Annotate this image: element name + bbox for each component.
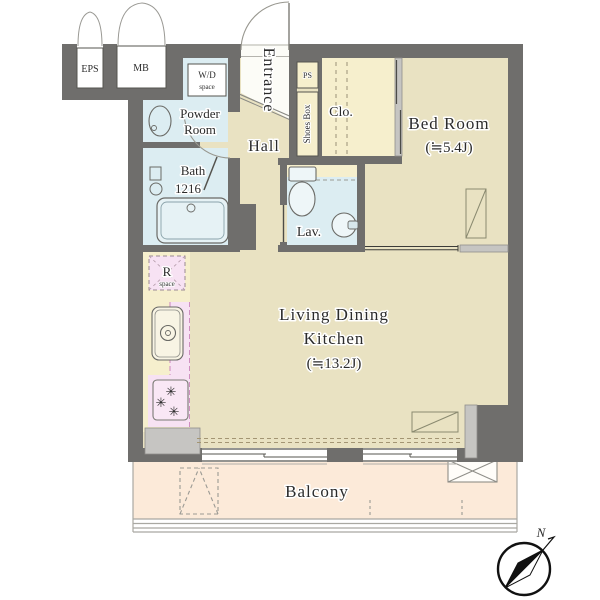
closet-label: Clo. — [329, 105, 353, 120]
wd-space-box — [188, 64, 226, 96]
r-space-label-2: space — [159, 280, 175, 288]
utility-boxes — [77, 3, 166, 88]
powder-right-wall-lower — [228, 158, 240, 250]
bedroom-size-label: (≒5.4J) — [425, 140, 472, 156]
svg-text:✳: ✳ — [169, 404, 180, 419]
wd-label-2: space — [199, 83, 215, 91]
entrance-door-arc — [241, 2, 289, 50]
floor-plan: ✳ ✳ ✳ — [0, 0, 600, 600]
bottom-wall-pillar — [327, 448, 363, 462]
top-wall-left — [183, 44, 241, 58]
window-left — [202, 448, 327, 464]
lav-bottom-wall — [278, 245, 365, 252]
mb-label: MB — [133, 63, 149, 74]
bath-label-2: 1216 — [175, 181, 202, 196]
compass: N — [498, 525, 554, 595]
ldk-label-2: Kitchen — [304, 329, 365, 348]
hall-label: Hall — [248, 138, 280, 155]
powder-right-wall-upper — [228, 58, 240, 112]
svg-text:✳: ✳ — [166, 384, 177, 399]
powder-label-2: Room — [184, 122, 216, 137]
kitchen-sink — [152, 307, 183, 360]
right-step-lining — [465, 405, 477, 458]
bath-corner-pillar — [240, 204, 256, 250]
ps-label: PS — [303, 71, 312, 80]
ldk-label-1: Living Dining — [279, 305, 389, 324]
kitchen-end-panel — [145, 428, 200, 454]
left-wall — [128, 98, 143, 462]
window-right — [363, 448, 457, 464]
toilet-bowl — [289, 182, 315, 216]
lav-sink-tap — [348, 221, 358, 229]
bedroom-label: Bed Room — [408, 114, 489, 133]
wd-label-1: W/D — [198, 70, 216, 80]
bath-label-1: Bath — [181, 163, 206, 178]
toilet-tank — [289, 167, 316, 181]
bath-bottom-wall — [128, 245, 240, 252]
balcony-label: Balcony — [285, 482, 349, 501]
powder-label-1: Powder — [180, 106, 220, 121]
eps-door-arcs — [78, 12, 102, 46]
floor-plan-page: ✳ ✳ ✳ — [0, 0, 600, 600]
stove: ✳ ✳ ✳ — [153, 380, 188, 420]
eps-threshold — [77, 44, 103, 48]
entrance-label: Entrance — [260, 48, 277, 113]
hall-shoes-wall — [289, 58, 297, 164]
right-wall — [508, 44, 523, 405]
compass-north-label: N — [536, 525, 547, 540]
ldk-size-label: (≒13.2J) — [307, 356, 362, 372]
lav-top-wall — [278, 158, 365, 165]
svg-text:✳: ✳ — [156, 395, 167, 410]
mb-door-arcs — [118, 3, 165, 46]
shoes-closet-wall — [318, 58, 322, 156]
lav-right-wall — [357, 165, 365, 252]
lav-label: Lav. — [297, 225, 321, 240]
r-space-label-1: R — [163, 264, 172, 279]
eps-label: EPS — [81, 64, 98, 75]
bedroom-partition-wall — [460, 245, 508, 252]
ac-outdoor-unit — [448, 460, 497, 482]
powder-bath-divider — [143, 142, 200, 148]
top-wall-right — [289, 44, 523, 58]
lav-left-wall-upper — [280, 165, 287, 205]
shoes-box-label: Shoes Box — [302, 104, 312, 143]
